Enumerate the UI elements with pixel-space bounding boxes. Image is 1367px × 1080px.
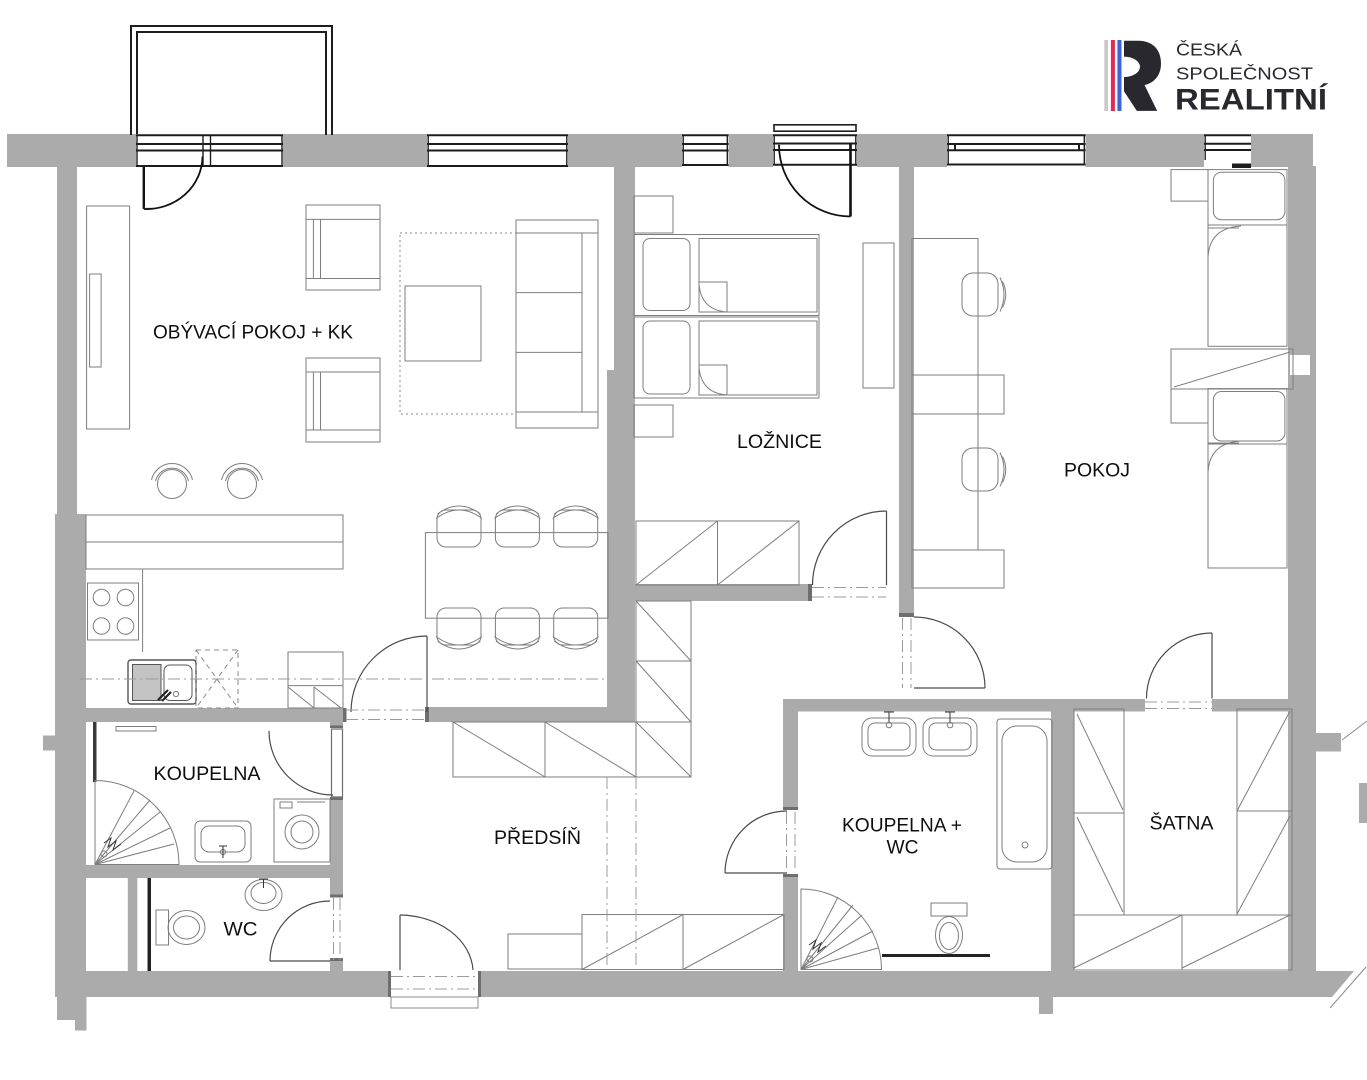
svg-text:ŠATNA: ŠATNA (1150, 813, 1214, 835)
svg-text:LOŽNICE: LOŽNICE (737, 431, 822, 453)
svg-text:WC: WC (224, 920, 258, 941)
svg-text:SPOLEČNOST: SPOLEČNOST (1176, 62, 1313, 83)
svg-text:ČESKÁ: ČESKÁ (1176, 39, 1242, 60)
svg-text:REALITNÍ: REALITNÍ (1175, 83, 1328, 117)
svg-text:POKOJ: POKOJ (1064, 461, 1130, 482)
svg-text:KOUPELNA: KOUPELNA (154, 764, 261, 785)
svg-text:WC: WC (887, 838, 919, 859)
svg-text:PŘEDSÍŇ: PŘEDSÍŇ (494, 827, 581, 849)
svg-text:OBÝVACÍ POKOJ + KK: OBÝVACÍ POKOJ + KK (153, 323, 353, 344)
svg-text:KOUPELNA +: KOUPELNA + (842, 816, 962, 837)
